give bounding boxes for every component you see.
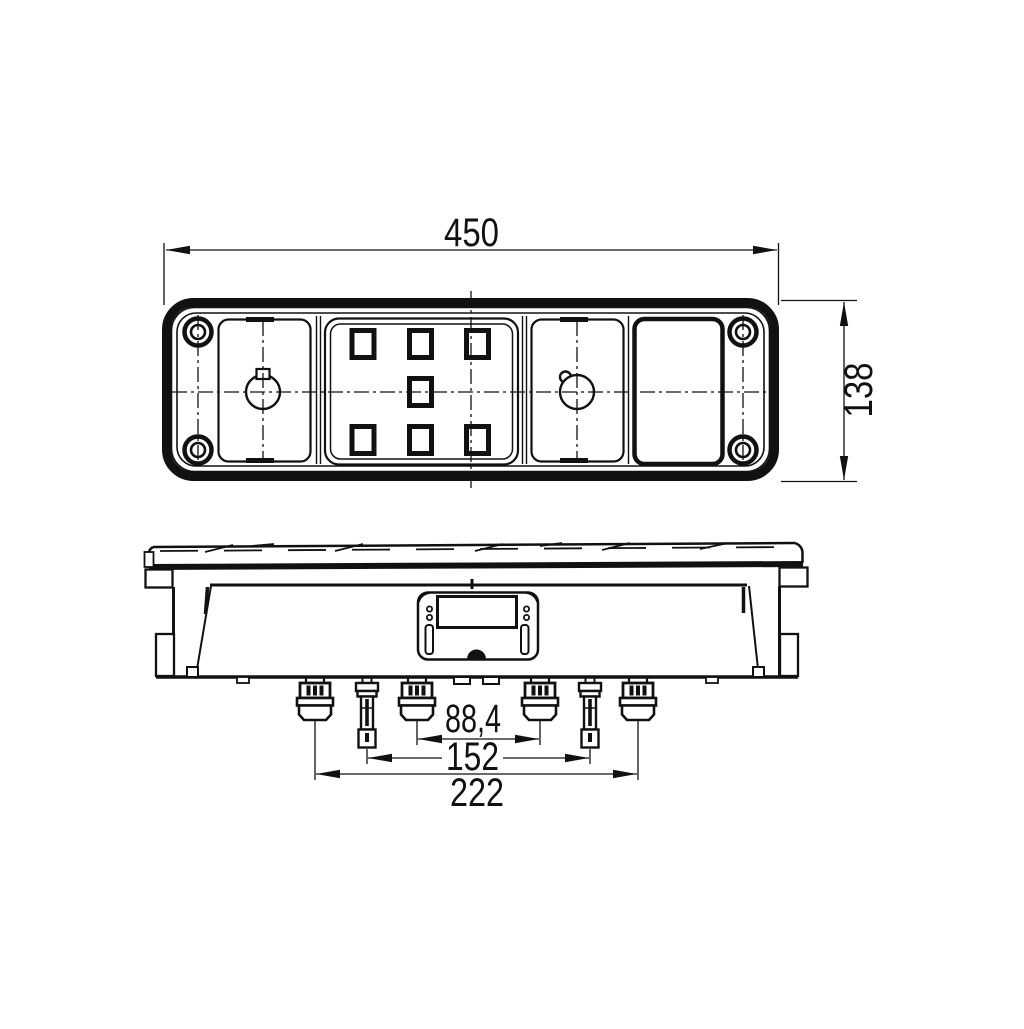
right-foot — [780, 634, 798, 676]
lens-profile — [145, 543, 804, 567]
lens-left-step — [145, 552, 154, 567]
dimension-text-spacing-outer: 222 — [450, 771, 504, 815]
segment1-top-tab — [246, 317, 274, 322]
dimension-text-overall-width: 450 — [444, 211, 499, 255]
lamp-segment-1 — [219, 317, 311, 463]
segment3-bottom-tab — [560, 458, 588, 463]
bottom-tab-center-left — [454, 677, 470, 684]
bottom-tab-center-right — [483, 677, 499, 684]
arrowhead-left — [418, 735, 442, 743]
right-mounting-ear — [780, 568, 808, 587]
left-foot — [156, 634, 174, 676]
cover-label-window — [438, 597, 517, 628]
connector-2-pin — [356, 678, 378, 748]
dimension-overall-width: 450 — [164, 211, 779, 305]
bottom-view: 88,4 152 222 — [145, 543, 808, 815]
arrowhead-right — [753, 246, 777, 254]
segment3-top-tab — [560, 317, 588, 322]
arrowhead-left — [166, 246, 190, 254]
connector-4-large — [522, 678, 558, 721]
arrowhead-right — [515, 735, 539, 743]
arrowhead-top — [840, 302, 848, 326]
inner-left-wall — [187, 586, 211, 677]
technical-drawing-page: 450 138 — [0, 0, 1024, 1024]
lamp-segment-3 — [532, 317, 624, 463]
dimension-overall-height: 138 — [781, 301, 881, 482]
arrowhead-left — [316, 770, 340, 778]
bottom-tab-far-left — [237, 677, 249, 683]
segment1-bottom-tab — [246, 458, 274, 463]
inner-right-wall — [744, 586, 765, 677]
arrowhead-right — [565, 754, 589, 762]
connector-cover — [418, 579, 538, 660]
connector-6-large — [620, 678, 656, 721]
connector-3-large — [399, 678, 435, 721]
arrowhead-bottom — [840, 456, 848, 480]
bottom-tab-far-right — [706, 677, 718, 683]
lens-body-joint-band — [149, 564, 803, 567]
connector-5-pin — [579, 678, 601, 748]
left-mounting-ear — [146, 570, 173, 588]
connector-1-large — [297, 678, 333, 721]
dimension-text-overall-height: 138 — [837, 363, 881, 418]
arrowhead-right — [613, 770, 637, 778]
front-view: 450 138 — [164, 211, 881, 489]
rear-lamp-technical-drawing: 450 138 — [0, 0, 1024, 1024]
arrowhead-left — [368, 754, 392, 762]
